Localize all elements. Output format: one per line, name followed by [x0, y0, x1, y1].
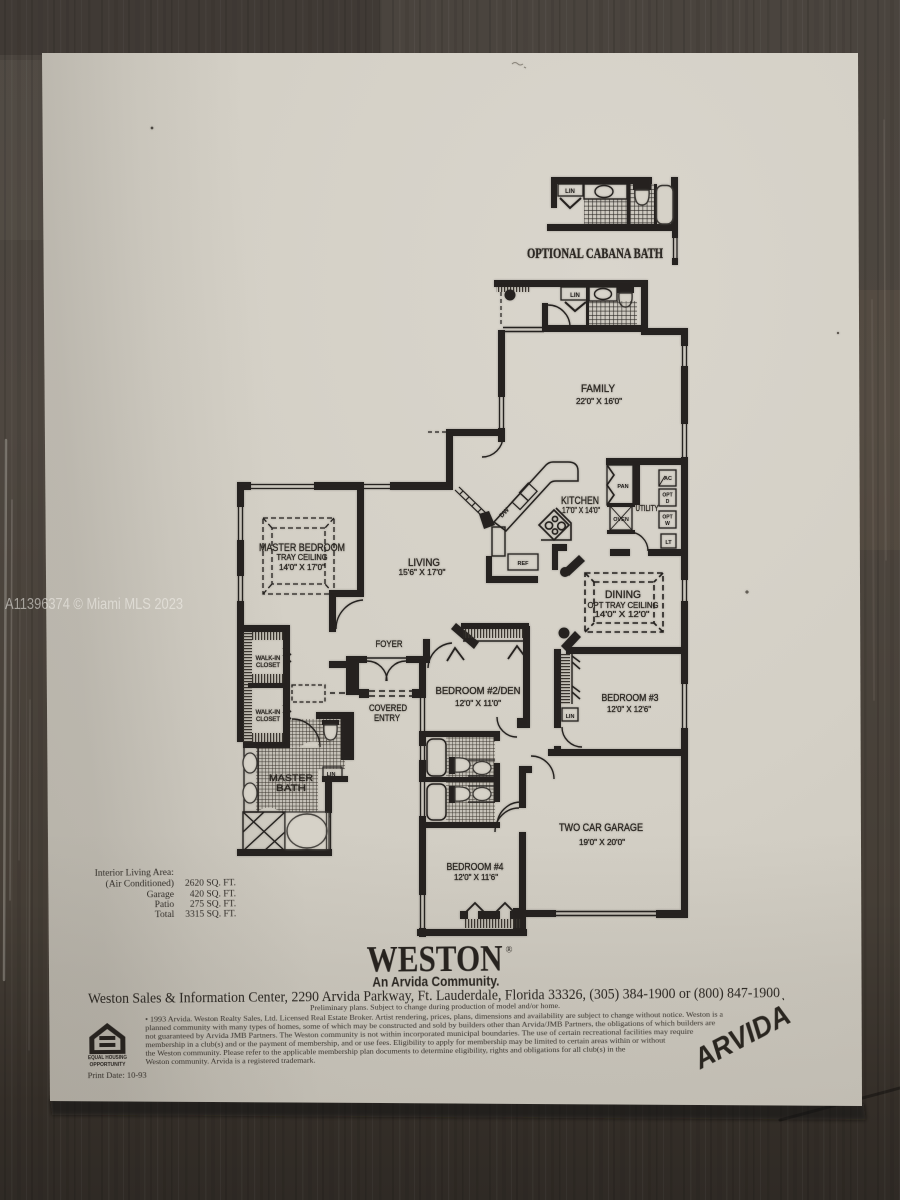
svg-text:275 SQ. FT.: 275 SQ. FT. — [190, 899, 236, 909]
svg-text:(Air Conditioned): (Air Conditioned) — [106, 878, 174, 890]
svg-text:Weston community. Arvida is a: Weston community. Arvida is a registered… — [145, 1056, 315, 1066]
svg-text:Total: Total — [155, 910, 175, 920]
svg-text:EQUAL HOUSING: EQUAL HOUSING — [88, 1055, 127, 1061]
svg-text:A11396374 © Miami MLS 2023: A11396374 © Miami MLS 2023 — [5, 596, 183, 613]
svg-text:420 SQ. FT.: 420 SQ. FT. — [190, 889, 236, 899]
svg-text:Patio: Patio — [155, 900, 175, 910]
svg-text:Garage: Garage — [147, 890, 175, 900]
svg-text:3315 SQ. FT.: 3315 SQ. FT. — [185, 909, 236, 920]
svg-text:Print Date: 10-93: Print Date: 10-93 — [88, 1070, 147, 1081]
svg-text:Interior Living Area:: Interior Living Area: — [95, 868, 174, 879]
svg-text:OPPORTUNITY: OPPORTUNITY — [90, 1062, 126, 1068]
svg-text:®: ® — [506, 944, 513, 954]
svg-text:2620 SQ. FT.: 2620 SQ. FT. — [185, 878, 236, 889]
